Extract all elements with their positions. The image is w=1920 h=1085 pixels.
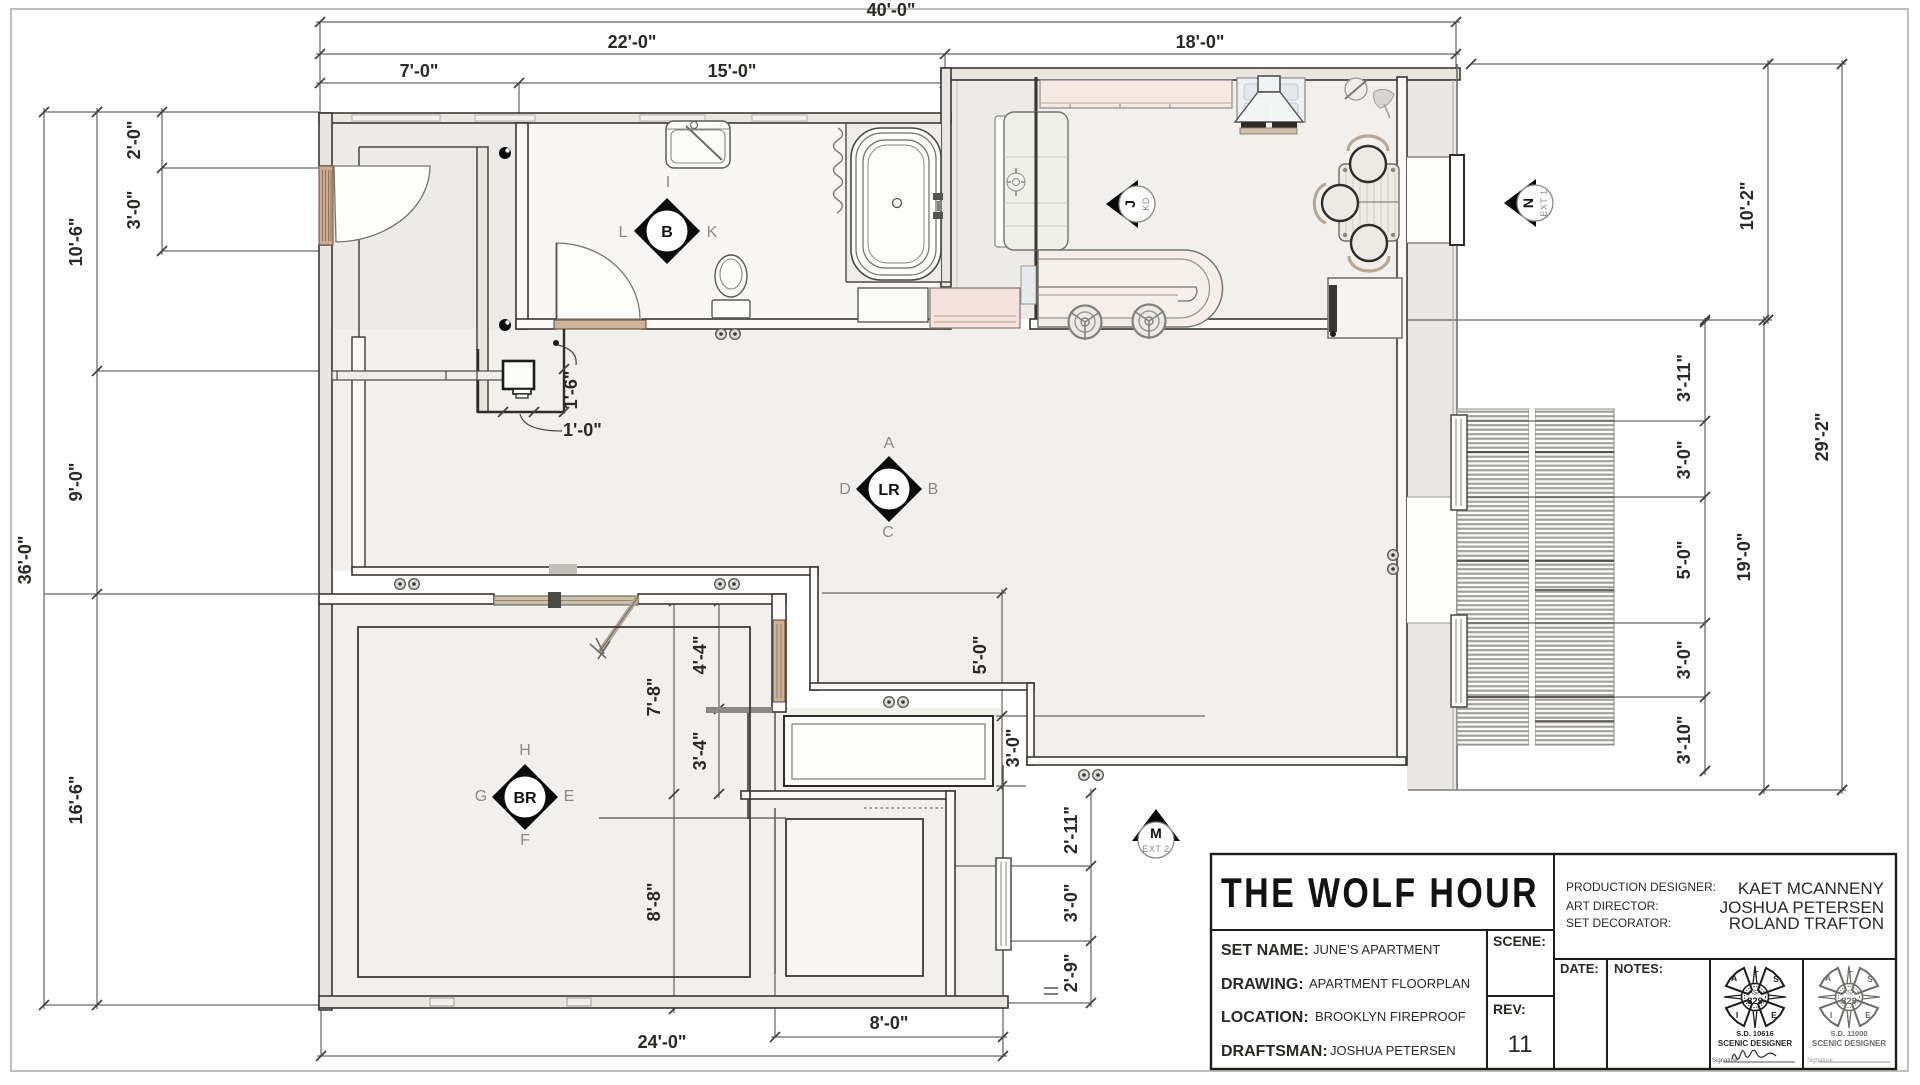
svg-text:LOCATION:: LOCATION: (1221, 1009, 1309, 1026)
svg-text:3'-4": 3'-4" (690, 732, 710, 771)
svg-text:S.D. 11000: S.D. 11000 (1830, 1029, 1867, 1038)
svg-text:11: 11 (1508, 1031, 1533, 1058)
svg-text:REV:: REV: (1493, 1001, 1526, 1017)
svg-text:KD: KD (1141, 197, 1151, 211)
svg-text:S: S (1867, 974, 1873, 984)
svg-text:SCENIC DESIGNER: SCENIC DESIGNER (1718, 1039, 1792, 1048)
svg-text:10'-2": 10'-2" (1737, 182, 1757, 231)
svg-text:I: I (1736, 1010, 1738, 1020)
svg-text:24'-0": 24'-0" (638, 1032, 687, 1052)
svg-text:9'-0": 9'-0" (66, 463, 86, 502)
svg-text:2'-11": 2'-11" (1061, 806, 1081, 854)
svg-text:THE WOLF HOUR: THE WOLF HOUR (1221, 869, 1539, 916)
svg-text:KAET MCANNENY: KAET MCANNENY (1738, 879, 1884, 898)
svg-text:3'-0": 3'-0" (1674, 441, 1694, 480)
svg-text:36'-0": 36'-0" (15, 536, 35, 585)
svg-text:M: M (1150, 825, 1162, 841)
svg-text:A: A (1825, 973, 1831, 983)
svg-text:B: B (928, 481, 939, 498)
svg-text:SET DECORATOR:: SET DECORATOR: (1566, 916, 1671, 930)
svg-text:8'-8": 8'-8" (644, 883, 664, 922)
svg-text:18'-0": 18'-0" (1176, 32, 1225, 52)
svg-text:15'-0": 15'-0" (708, 61, 757, 81)
svg-text:829: 829 (1841, 996, 1857, 1007)
svg-text:BR: BR (513, 790, 537, 807)
svg-text:G: G (475, 788, 487, 805)
svg-text:L: L (619, 224, 628, 241)
svg-text:NOTES:: NOTES: (1614, 961, 1663, 976)
svg-text:16'-6": 16'-6" (66, 776, 86, 825)
svg-text:3'-0": 3'-0" (1674, 641, 1694, 680)
svg-text:E: E (1771, 1010, 1777, 1020)
svg-text:19'-0": 19'-0" (1734, 533, 1754, 582)
svg-text:ART DIRECTOR:: ART DIRECTOR: (1566, 899, 1659, 913)
svg-text:B: B (661, 224, 673, 241)
svg-text:JOSHUA PETERSEN: JOSHUA PETERSEN (1330, 1043, 1456, 1058)
svg-text:E: E (564, 788, 575, 805)
svg-text:S.D. 10616: S.D. 10616 (1736, 1029, 1774, 1038)
svg-text:JUNE’S APARTMENT: JUNE’S APARTMENT (1313, 942, 1440, 957)
svg-text:1'-6": 1'-6" (561, 371, 581, 410)
svg-text:7'-8": 7'-8" (644, 678, 664, 717)
svg-text:N: N (1520, 198, 1536, 208)
svg-text:C: C (882, 524, 894, 541)
svg-text:J: J (1122, 200, 1138, 208)
svg-text:5'-0": 5'-0" (970, 636, 990, 675)
svg-text:D: D (839, 481, 851, 498)
svg-text:3'-0": 3'-0" (1003, 729, 1023, 768)
svg-text:S: S (1773, 974, 1779, 984)
svg-text:22'-0": 22'-0" (608, 32, 657, 52)
svg-text:E: E (1865, 1010, 1871, 1020)
svg-text:3'-11": 3'-11" (1674, 354, 1694, 402)
svg-text:7'-0": 7'-0" (400, 61, 439, 81)
svg-text:Signature:: Signature: (1712, 1058, 1740, 1064)
svg-text:Signature:: Signature: (1807, 1058, 1835, 1064)
svg-text:F: F (520, 832, 530, 849)
svg-text:29'-2": 29'-2" (1812, 413, 1832, 462)
svg-text:BROOKLYN FIREPROOF: BROOKLYN FIREPROOF (1315, 1009, 1466, 1024)
svg-text:PRODUCTION DESIGNER:: PRODUCTION DESIGNER: (1566, 880, 1716, 894)
svg-text:H: H (519, 742, 531, 759)
svg-text:LR: LR (878, 482, 900, 499)
svg-text:DRAWING:: DRAWING: (1221, 976, 1304, 993)
svg-text:SET NAME:: SET NAME: (1221, 942, 1309, 959)
svg-text:40'-0": 40'-0" (867, 0, 916, 20)
svg-text:A: A (1731, 973, 1737, 983)
svg-text:EXT 2: EXT 2 (1142, 844, 1169, 854)
svg-text:2'-0": 2'-0" (124, 121, 144, 160)
svg-text:T: T (1847, 969, 1853, 979)
svg-text:A: A (884, 435, 895, 452)
svg-text:3'-0": 3'-0" (124, 191, 144, 230)
svg-text:ROLAND TRAFTON: ROLAND TRAFTON (1729, 914, 1884, 933)
svg-text:8'-0": 8'-0" (870, 1013, 909, 1033)
svg-text:T: T (1753, 969, 1759, 979)
svg-text:3'-10": 3'-10" (1674, 716, 1694, 765)
svg-text:2'-9": 2'-9" (1061, 954, 1081, 993)
svg-text:829: 829 (1747, 996, 1763, 1007)
svg-text:1'-0": 1'-0" (563, 420, 602, 440)
svg-text:SCENE:: SCENE: (1493, 933, 1546, 949)
svg-text:DRAFTSMAN:: DRAFTSMAN: (1221, 1043, 1328, 1060)
svg-text:I: I (666, 174, 670, 191)
svg-text:K: K (707, 224, 718, 241)
svg-text:3'-0": 3'-0" (1061, 884, 1081, 923)
svg-text:DATE:: DATE: (1560, 961, 1599, 976)
svg-text:APARTMENT FLOORPLAN: APARTMENT FLOORPLAN (1309, 976, 1470, 991)
svg-text:5'-0": 5'-0" (1674, 541, 1694, 580)
svg-text:SCENIC DESIGNER: SCENIC DESIGNER (1812, 1039, 1886, 1048)
svg-text:10'-6": 10'-6" (66, 218, 86, 267)
svg-text:I: I (1830, 1010, 1832, 1020)
svg-text:EXT 1: EXT 1 (1539, 189, 1549, 216)
svg-text:4'-4": 4'-4" (690, 636, 710, 675)
